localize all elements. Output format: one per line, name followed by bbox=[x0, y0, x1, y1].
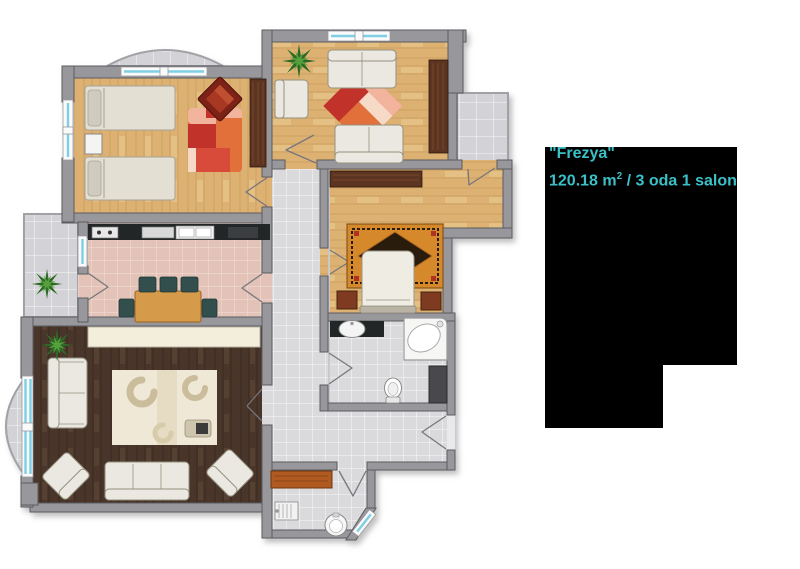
balcony-top-right bbox=[457, 93, 508, 163]
living-room-window bbox=[22, 376, 33, 477]
stove bbox=[92, 227, 118, 238]
double-bed bbox=[360, 251, 416, 313]
balcony-arc bbox=[107, 50, 223, 66]
apartment bbox=[6, 30, 512, 540]
unit-name: "Frezya" bbox=[549, 142, 737, 165]
plant bbox=[41, 329, 73, 361]
counter-appliance bbox=[142, 227, 174, 238]
shaft bbox=[429, 366, 447, 403]
sofa-bottom bbox=[105, 462, 189, 500]
corner-bathtub bbox=[403, 318, 447, 360]
single-bed bbox=[85, 86, 175, 130]
wardrobe bbox=[429, 60, 448, 153]
unit-spec: 120.18 m2 / 3 oda 1 salon bbox=[549, 165, 737, 192]
sideboard bbox=[88, 327, 260, 347]
hallway-floor bbox=[272, 169, 320, 411]
bedroom2-top-window bbox=[328, 31, 390, 41]
toilet bbox=[385, 378, 402, 403]
plant bbox=[282, 44, 316, 78]
bedroom1-left-window bbox=[63, 100, 73, 160]
shoe-cabinet bbox=[271, 471, 332, 488]
hallway-lower-floor bbox=[272, 411, 447, 462]
nightstand bbox=[421, 292, 441, 310]
counter-dark-section bbox=[228, 227, 258, 238]
dining-table bbox=[135, 291, 201, 322]
radiator bbox=[275, 502, 298, 520]
black-panel-tail bbox=[545, 365, 663, 428]
nightstand bbox=[337, 291, 357, 309]
red-patch-rug bbox=[188, 108, 242, 172]
sofa bbox=[328, 50, 396, 88]
sofa-vertical bbox=[48, 358, 87, 428]
balcony-left bbox=[24, 214, 78, 317]
nightstand bbox=[85, 134, 102, 154]
single-bed bbox=[85, 157, 175, 200]
unit-label: "Frezya" 120.18 m2 / 3 oda 1 salon bbox=[549, 142, 737, 192]
armchair bbox=[275, 80, 308, 118]
sofa bbox=[335, 125, 403, 163]
bedroom1-top-window bbox=[121, 67, 207, 76]
double-sink bbox=[176, 226, 214, 239]
floorplan-page: "Frezya" 120.18 m2 / 3 oda 1 salon bbox=[0, 0, 800, 569]
area-rug bbox=[112, 370, 217, 445]
kitchen-window bbox=[78, 236, 87, 267]
shelf bbox=[330, 171, 422, 187]
wardrobe bbox=[250, 79, 266, 167]
lounge-chair bbox=[185, 420, 211, 437]
plant bbox=[32, 269, 63, 300]
